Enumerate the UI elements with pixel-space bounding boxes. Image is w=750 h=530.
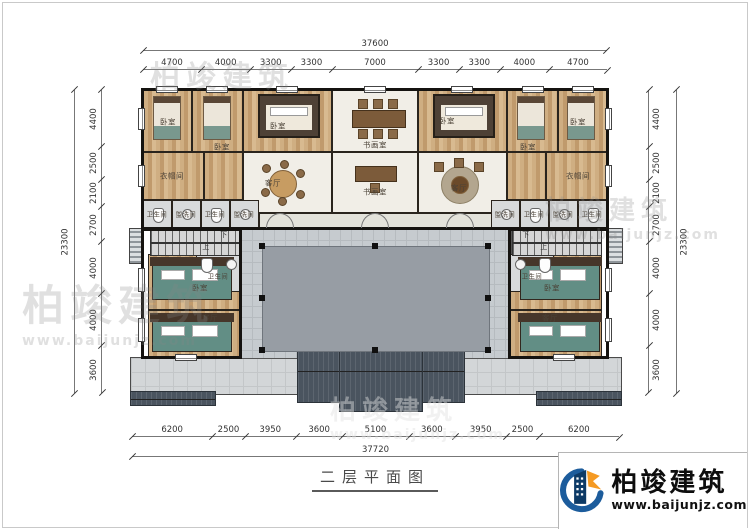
dim-left-total-col: 23300 <box>58 90 75 393</box>
drawing-title: 二层平面图 <box>290 466 460 487</box>
column-dot <box>259 243 265 249</box>
drawing-title-block: 二层平面图 <box>290 466 460 492</box>
room-label-cloakroom: 衣帽间 <box>566 171 590 182</box>
dim-segment: 3300 <box>418 56 459 70</box>
room-label-living: 客厅 <box>451 183 467 194</box>
dim-segment: 2100 <box>86 180 102 207</box>
chair <box>358 99 368 109</box>
desk <box>352 110 406 128</box>
dim-label: 4000 <box>652 257 662 279</box>
room-label-bedroom: 卧室 <box>270 121 286 132</box>
column-dot <box>259 347 265 353</box>
dim-segment: 2500 <box>86 147 102 180</box>
chair <box>388 129 398 139</box>
dim-label: 3300 <box>260 58 282 68</box>
dim-segment: 3950 <box>455 423 506 437</box>
room-label-bedroom: 卧室 <box>160 117 176 128</box>
side-platform-left <box>129 228 144 264</box>
window <box>553 354 575 361</box>
chair <box>373 129 383 139</box>
window <box>605 108 612 130</box>
dim-total-label: 37600 <box>361 39 388 49</box>
dim-label: 4000 <box>215 58 237 68</box>
eave-left <box>130 391 216 406</box>
dim-label: 2500 <box>512 425 534 435</box>
dim-segment: 4400 <box>648 90 664 147</box>
dim-label: 3600 <box>89 359 99 381</box>
dim-label: 4000 <box>89 309 99 331</box>
canopy-bed <box>258 94 320 138</box>
chair <box>358 129 368 139</box>
chair <box>296 169 305 178</box>
room-label-bedroom: 卧室 <box>192 283 208 294</box>
column-dot <box>485 347 491 353</box>
dim-segment: 4700 <box>143 56 201 70</box>
room-label-bedroom: 卧室 <box>520 142 536 153</box>
room-label-bathroom: 卫生间 <box>582 210 602 219</box>
chair <box>296 190 305 199</box>
chair <box>280 160 289 169</box>
brand-logo-box: 柏竣建筑 www.baijunjz.com <box>558 452 747 529</box>
room-label-bathroom: 卫生间 <box>205 210 225 219</box>
room-label-study: 书画室 <box>363 140 387 151</box>
room-label-living: 客厅 <box>202 313 218 324</box>
dim-label: 4700 <box>161 58 183 68</box>
chair <box>262 164 271 173</box>
dim-label: 2500 <box>89 153 99 175</box>
dim-segment: 4000 <box>500 56 549 70</box>
window <box>138 165 145 187</box>
room-label-washroom: 盥洗间 <box>553 210 573 219</box>
dim-segment: 2500 <box>506 423 538 437</box>
floor-plan-sheet: 37600 4700400033003300700033003300400047… <box>0 0 750 530</box>
dim-segment: 3600 <box>296 423 343 437</box>
dim-label: 6200 <box>568 425 590 435</box>
room-label-living: 客厅 <box>542 313 558 324</box>
column-dot <box>372 347 378 353</box>
window <box>138 318 145 342</box>
dim-label: 4400 <box>89 108 99 130</box>
lower-roof-terrace-right <box>462 357 622 395</box>
desk <box>355 166 397 182</box>
dim-segment: 3300 <box>250 56 291 70</box>
stair-up-label: 上 <box>202 242 210 252</box>
column-dot <box>259 295 265 301</box>
dim-label: 3950 <box>259 425 281 435</box>
chair <box>454 158 464 168</box>
dim-segment: 2500 <box>212 423 244 437</box>
dim-segment: 4000 <box>648 242 664 294</box>
dim-segment: 2700 <box>648 207 664 242</box>
window <box>156 86 178 93</box>
dim-segment: 4400 <box>86 90 102 147</box>
dim-segment: 2500 <box>648 147 664 180</box>
dim-segment: 3600 <box>409 423 456 437</box>
chair <box>278 197 287 206</box>
dim-segment: 3600 <box>86 346 102 393</box>
window <box>138 108 145 130</box>
side-platform-right <box>608 228 623 264</box>
dim-top-total-row: 37600 <box>143 34 607 51</box>
window <box>605 268 612 292</box>
dim-right-total-col: 23300 <box>676 90 693 393</box>
room-label-bathroom: 卫生间 <box>147 210 167 219</box>
dim-total-label: 23300 <box>680 228 690 255</box>
stair-down-label: 下 <box>522 230 530 240</box>
dim-bottom-segments: 620025003950360051003600395025006200 <box>132 423 619 437</box>
dim-segment: 4000 <box>86 242 102 294</box>
dim-label: 3600 <box>652 359 662 381</box>
dim-label: 3300 <box>468 58 490 68</box>
title-underline <box>312 490 438 492</box>
room-label-bedroom: 卧室 <box>570 117 586 128</box>
window <box>451 86 473 93</box>
sink <box>515 259 526 270</box>
dim-bottom-total-row: 37720 <box>132 441 619 457</box>
lower-roof-terrace-left <box>130 357 300 395</box>
window <box>175 354 197 361</box>
dim-segment: 6200 <box>539 423 619 437</box>
dim-segment: 4700 <box>549 56 607 70</box>
room-label-washroom: 盥洗间 <box>176 210 196 219</box>
dim-label: 4700 <box>567 58 589 68</box>
dim-label: 3300 <box>428 58 450 68</box>
window <box>605 318 612 342</box>
column-dot <box>485 295 491 301</box>
dim-segment: 4000 <box>201 56 250 70</box>
room-label-cloakroom: 衣帽间 <box>160 171 184 182</box>
dim-segment: 3600 <box>648 346 664 393</box>
dim-label: 3600 <box>308 425 330 435</box>
courtyard-void <box>262 246 490 352</box>
eave-right <box>536 391 622 406</box>
dim-segment: 6200 <box>132 423 212 437</box>
dim-segment: 3300 <box>291 56 332 70</box>
dim-label: 6200 <box>161 425 183 435</box>
chair <box>261 188 270 197</box>
dim-total-label: 23300 <box>61 228 71 255</box>
dim-label: 5100 <box>365 425 387 435</box>
dim-label: 3600 <box>421 425 443 435</box>
stair-up-label: 上 <box>540 242 548 252</box>
sink <box>226 259 237 270</box>
bed <box>152 316 232 352</box>
chair <box>373 99 383 109</box>
dim-segment: 4000 <box>648 294 664 346</box>
room-label-washroom: 盥洗间 <box>234 210 254 219</box>
bed <box>520 316 600 352</box>
dim-label: 4400 <box>652 108 662 130</box>
window <box>206 86 228 93</box>
dim-segment: 7000 <box>332 56 418 70</box>
room-label-bathroom: 卫生间 <box>524 210 544 219</box>
room-label-bathroom: 卫生间 <box>522 272 542 281</box>
window <box>276 86 298 93</box>
room-label-bedroom: 卧室 <box>214 142 230 153</box>
chair <box>388 99 398 109</box>
dim-label: 3950 <box>470 425 492 435</box>
dim-right-segments: 4400250021002700400040003600 <box>648 90 664 393</box>
column-dot <box>485 243 491 249</box>
room-label-living: 客厅 <box>265 178 281 189</box>
room-label-washroom: 盥洗间 <box>495 210 515 219</box>
dim-label: 4000 <box>652 309 662 331</box>
chair <box>434 162 444 172</box>
stair-down-label: 下 <box>220 230 228 240</box>
window <box>605 165 612 187</box>
brand-name: 柏竣建筑 <box>611 470 727 497</box>
room-label-bedroom: 卧室 <box>544 283 560 294</box>
window <box>138 268 145 292</box>
dim-label: 4000 <box>89 257 99 279</box>
dim-label: 2500 <box>218 425 240 435</box>
brand-logo-icon <box>559 462 604 520</box>
bed <box>203 96 231 140</box>
dim-label: 4000 <box>513 58 535 68</box>
dim-segment: 3300 <box>459 56 500 70</box>
brand-url: www.baijunjz.com <box>611 497 747 512</box>
dim-label: 3300 <box>301 58 323 68</box>
chair <box>474 162 484 172</box>
room-label-study: 书画室 <box>363 187 387 198</box>
window <box>572 86 594 93</box>
window <box>364 86 386 93</box>
dim-label: 2700 <box>652 214 662 236</box>
room-hall <box>204 152 243 200</box>
room-label-bedroom: 卧室 <box>439 116 455 127</box>
dim-left-segments: 4400250021002700400040003600 <box>86 90 102 393</box>
dim-label: 2700 <box>89 214 99 236</box>
room-hall <box>507 152 546 200</box>
column-dot <box>372 243 378 249</box>
dim-label: 2100 <box>652 183 662 205</box>
window <box>522 86 544 93</box>
dim-label: 2100 <box>89 183 99 205</box>
room-label-bathroom: 卫生间 <box>208 272 228 281</box>
dim-segment: 4000 <box>86 294 102 346</box>
dim-label: 7000 <box>364 58 386 68</box>
bed <box>517 96 545 140</box>
dim-top-segments: 470040003300330070003300330040004700 <box>143 56 607 70</box>
dim-total-label: 37720 <box>362 445 389 455</box>
dim-segment: 3950 <box>245 423 296 437</box>
dim-segment: 5100 <box>342 423 408 437</box>
dim-label: 2500 <box>652 153 662 175</box>
dim-segment: 2700 <box>86 207 102 242</box>
